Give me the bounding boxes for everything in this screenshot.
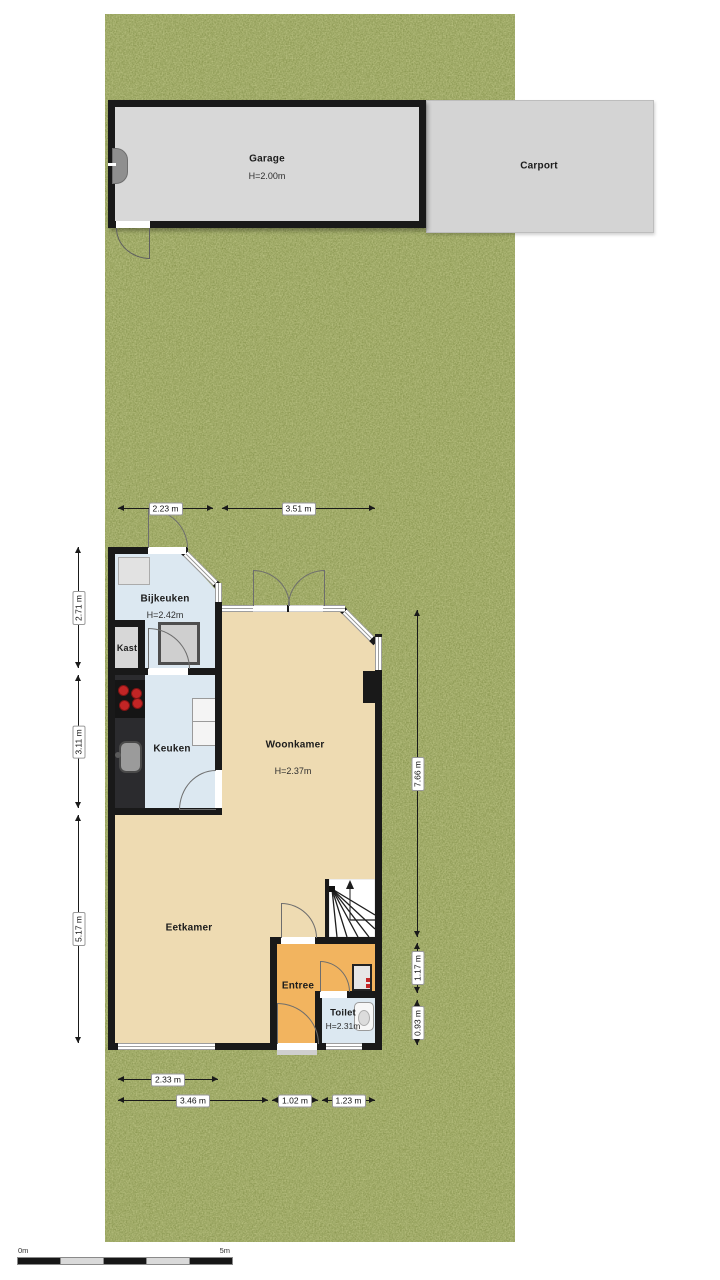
back-door-opening bbox=[148, 547, 186, 554]
woonkamer-window-left bbox=[222, 605, 253, 612]
kitchen-cabinet bbox=[192, 698, 216, 746]
garden-doors-mullion bbox=[287, 605, 289, 612]
toilet-door-opening bbox=[320, 991, 347, 998]
garage-label: Garage bbox=[249, 154, 285, 165]
kast-label: Kast bbox=[117, 643, 137, 653]
stove-burner bbox=[119, 700, 130, 711]
scale-bar-segments bbox=[18, 1257, 233, 1265]
scale-segment bbox=[60, 1257, 104, 1265]
dim-top-2: 3.51 m bbox=[222, 508, 375, 509]
dim-left-3: 5.17 m bbox=[78, 815, 79, 1043]
dim-right-2: 1.17 m bbox=[417, 943, 418, 993]
front-door-opening bbox=[277, 1043, 317, 1050]
dim-bottom-4: 1.23 m bbox=[322, 1100, 375, 1101]
kitchen-sink bbox=[119, 741, 142, 773]
woonkamer-floor bbox=[215, 612, 375, 815]
entree-appliance-detail bbox=[366, 984, 370, 988]
dim-left-2: 3.11 m bbox=[78, 675, 79, 808]
toilet-window bbox=[326, 1043, 362, 1050]
garage-side-door bbox=[112, 148, 128, 184]
stove-burner bbox=[132, 698, 143, 709]
entree-door-opening bbox=[281, 937, 315, 944]
scale-bar: 0m 5m bbox=[18, 1246, 230, 1266]
scale-end-label: 5m bbox=[220, 1246, 230, 1255]
garage-door-opening bbox=[116, 221, 150, 228]
dim-left-1: 2.71 m bbox=[78, 547, 79, 668]
wall-entree-left bbox=[270, 944, 277, 1043]
scale-segment bbox=[189, 1257, 233, 1265]
staircase bbox=[329, 879, 375, 937]
woonkamer-side-window bbox=[375, 637, 382, 670]
scale-segment bbox=[103, 1257, 147, 1265]
woonkamer-label: Woonkamer bbox=[266, 740, 325, 751]
woonkamer-window-right bbox=[323, 605, 345, 612]
dim-right-1: 7.66 m bbox=[417, 610, 418, 937]
scale-segment bbox=[17, 1257, 61, 1265]
bijkeuken-counter bbox=[118, 557, 150, 585]
front-door-step bbox=[277, 1050, 317, 1055]
bijkeuken-height-label: H=2.42m bbox=[147, 610, 184, 620]
entree-label: Entree bbox=[282, 981, 314, 992]
dim-right-3: 0.93 m bbox=[417, 1000, 418, 1045]
kitchen-cabinet-divider bbox=[192, 721, 216, 722]
woonkamer-height-label: H=2.37m bbox=[275, 766, 312, 776]
floorplan-canvas: Carport Garage H=2.00m bbox=[0, 0, 720, 1280]
toilet-height-label: H=2.31m bbox=[326, 1021, 361, 1031]
bijkeuken-label: Bijkeuken bbox=[140, 594, 189, 605]
dim-bottom-1: 2.33 m bbox=[118, 1079, 218, 1080]
keuken-label: Keuken bbox=[153, 744, 190, 755]
entree-appliance-detail bbox=[366, 978, 370, 982]
wall-kast-right bbox=[138, 620, 145, 668]
dim-bottom-2: 3.46 m bbox=[118, 1100, 268, 1101]
sink-faucet bbox=[115, 752, 121, 758]
carport-label: Carport bbox=[520, 161, 558, 172]
garage-height-label: H=2.00m bbox=[249, 171, 286, 181]
toilet-label: Toilet bbox=[330, 1008, 356, 1019]
bijkeuken-side-window bbox=[215, 583, 222, 602]
stove-burner bbox=[118, 685, 129, 696]
dim-top-1: 2.23 m bbox=[118, 508, 213, 509]
keuken-door-opening bbox=[215, 770, 222, 808]
dim-bottom-3: 1.02 m bbox=[272, 1100, 318, 1101]
garage-side-door-gap bbox=[108, 163, 116, 166]
bijkeuken-keuken-door-opening bbox=[148, 668, 188, 675]
wall-right bbox=[375, 634, 382, 1050]
eetkamer-label: Eetkamer bbox=[166, 923, 213, 934]
eetkamer-window bbox=[118, 1043, 215, 1050]
scale-segment bbox=[146, 1257, 190, 1265]
scale-start-label: 0m bbox=[18, 1246, 28, 1255]
